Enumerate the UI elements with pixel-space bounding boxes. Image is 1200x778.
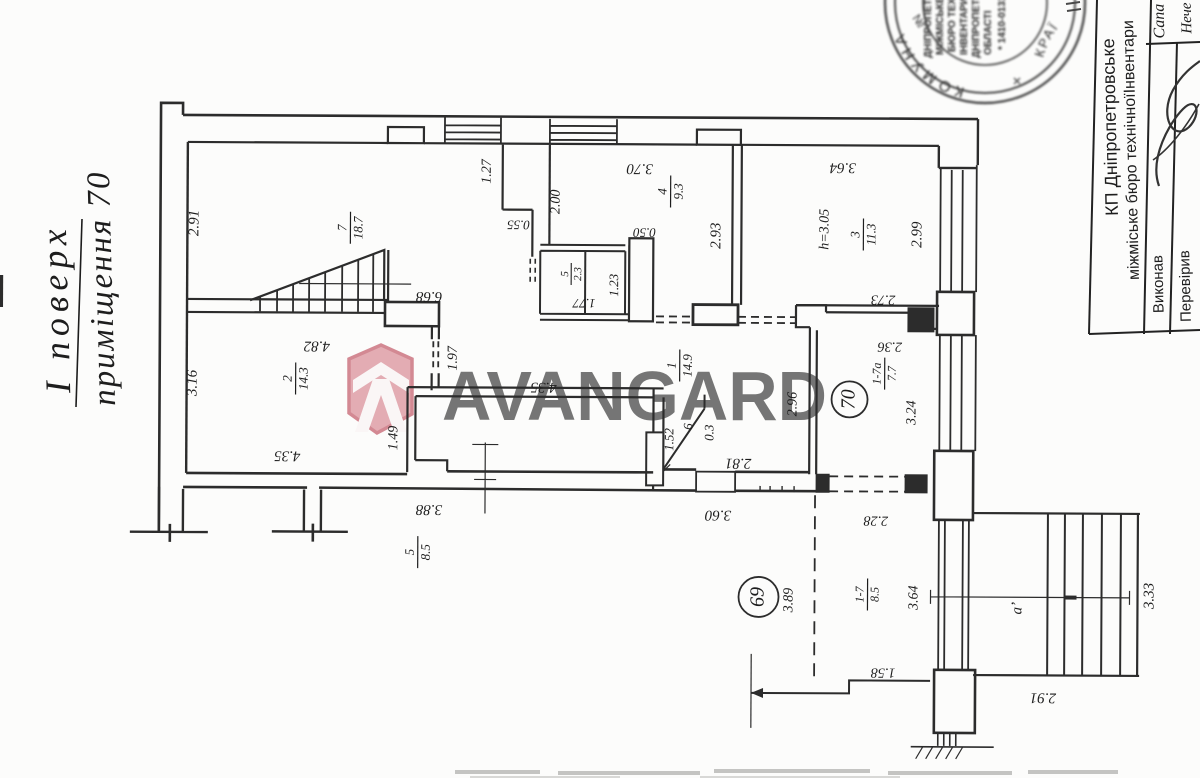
- svg-text:11.3: 11.3: [863, 223, 878, 245]
- svg-text:Перевірив: Перевірив: [1176, 250, 1195, 322]
- svg-text:3.24: 3.24: [904, 400, 919, 426]
- svg-text:5: 5: [402, 548, 417, 555]
- svg-text:8.5: 8.5: [418, 544, 433, 561]
- svg-text:3.64: 3.64: [906, 585, 921, 611]
- svg-text:9.3: 9.3: [671, 183, 686, 200]
- svg-text:Сапа: Сапа: [1151, 4, 1169, 39]
- svg-text:ДНІПРОПЕТР: ДНІПРОПЕТР: [971, 0, 982, 58]
- svg-text:ОБЛАСТІ: ОБЛАСТІ: [983, 10, 994, 55]
- svg-text:міжміське бюро технічноїІнвент: міжміське бюро технічноїІнвентари: [1120, 20, 1143, 280]
- svg-text:3.16: 3.16: [185, 369, 201, 397]
- svg-text:14.3: 14.3: [296, 367, 311, 390]
- svg-text:1.23: 1.23: [606, 273, 621, 296]
- svg-text:70: 70: [837, 389, 859, 409]
- svg-text:3.33: 3.33: [1141, 583, 1157, 610]
- svg-text:0.50: 0.50: [633, 225, 656, 240]
- svg-text:4.82: 4.82: [303, 338, 330, 354]
- svg-text:2.91: 2.91: [1030, 689, 1056, 705]
- svg-text:2.91: 2.91: [186, 210, 202, 236]
- svg-text:1.58: 1.58: [871, 665, 896, 680]
- svg-text:Нече: Нече: [1179, 2, 1196, 35]
- svg-text:18.7: 18.7: [350, 216, 365, 239]
- svg-text:І поверх: І поверх: [34, 223, 78, 395]
- svg-text:4.35: 4.35: [530, 379, 557, 395]
- svg-text:1.52: 1.52: [661, 428, 676, 451]
- svg-text:аʼ: аʼ: [1009, 602, 1025, 615]
- svg-text:1.77: 1.77: [572, 296, 595, 311]
- svg-text:КП Дніпропетровське: КП Дніпропетровське: [1098, 38, 1122, 216]
- svg-text:3.70: 3.70: [626, 160, 654, 176]
- svg-text:2.00: 2.00: [549, 190, 564, 215]
- svg-text:1.97: 1.97: [446, 345, 461, 371]
- svg-text:4.35: 4.35: [274, 447, 301, 463]
- svg-text:7: 7: [334, 224, 349, 231]
- svg-text:2.36: 2.36: [878, 339, 903, 354]
- svg-text:3.89: 3.89: [781, 588, 796, 614]
- svg-text:МІЖМІСЬКЕ: МІЖМІСЬКЕ: [935, 0, 946, 55]
- svg-text:1-7а: 1-7а: [870, 363, 884, 385]
- svg-text:2.93: 2.93: [708, 223, 724, 249]
- svg-text:6: 6: [680, 423, 695, 430]
- svg-text:3: 3: [847, 231, 862, 239]
- svg-text:8.5: 8.5: [867, 587, 881, 602]
- svg-text:2.3: 2.3: [572, 267, 584, 281]
- svg-text:0.55: 0.55: [507, 218, 530, 233]
- svg-text:14.9: 14.9: [680, 354, 695, 377]
- svg-text:Виконав: Виконав: [1149, 255, 1167, 313]
- svg-text:2.96: 2.96: [785, 392, 800, 417]
- svg-text:2.28: 2.28: [864, 512, 889, 527]
- svg-text:3.64: 3.64: [829, 159, 857, 175]
- svg-text:69: 69: [746, 587, 768, 607]
- svg-text:3.60: 3.60: [704, 507, 732, 523]
- svg-text:КОМУНАЛЬНЕ: КОМУНАЛЬНЕ: [0, 0, 966, 101]
- svg-text:2: 2: [280, 375, 295, 382]
- svg-text:5: 5: [559, 271, 571, 277]
- svg-text:h=3.05: h=3.05: [817, 209, 832, 250]
- svg-text:1-7: 1-7: [852, 585, 866, 602]
- svg-text:2.99: 2.99: [909, 221, 925, 248]
- svg-text:3.88: 3.88: [415, 501, 443, 517]
- svg-text:приміщення 70: приміщення 70: [81, 170, 123, 406]
- svg-text:1.49: 1.49: [386, 426, 401, 451]
- svg-text:ДНІПРОПЕТРОВСЬКЕ: ДНІПРОПЕТРОВСЬКЕ: [923, 0, 934, 58]
- svg-text:6.68: 6.68: [415, 288, 442, 304]
- svg-text:2.81: 2.81: [725, 455, 751, 471]
- svg-text:* 1410-0131: * 1410-0131: [997, 0, 1008, 50]
- svg-text:1: 1: [664, 362, 679, 369]
- svg-text:1.27: 1.27: [480, 158, 495, 184]
- svg-text:ІНВЕНТАРИЗ: ІНВЕНТАРИЗ: [959, 0, 970, 55]
- svg-text:4: 4: [655, 188, 670, 195]
- svg-text:7.7: 7.7: [885, 365, 899, 381]
- svg-text:БЮРО ТЕХН: БЮРО ТЕХН: [947, 0, 958, 52]
- svg-text:2.73: 2.73: [871, 292, 896, 307]
- svg-text:0.3: 0.3: [701, 424, 716, 441]
